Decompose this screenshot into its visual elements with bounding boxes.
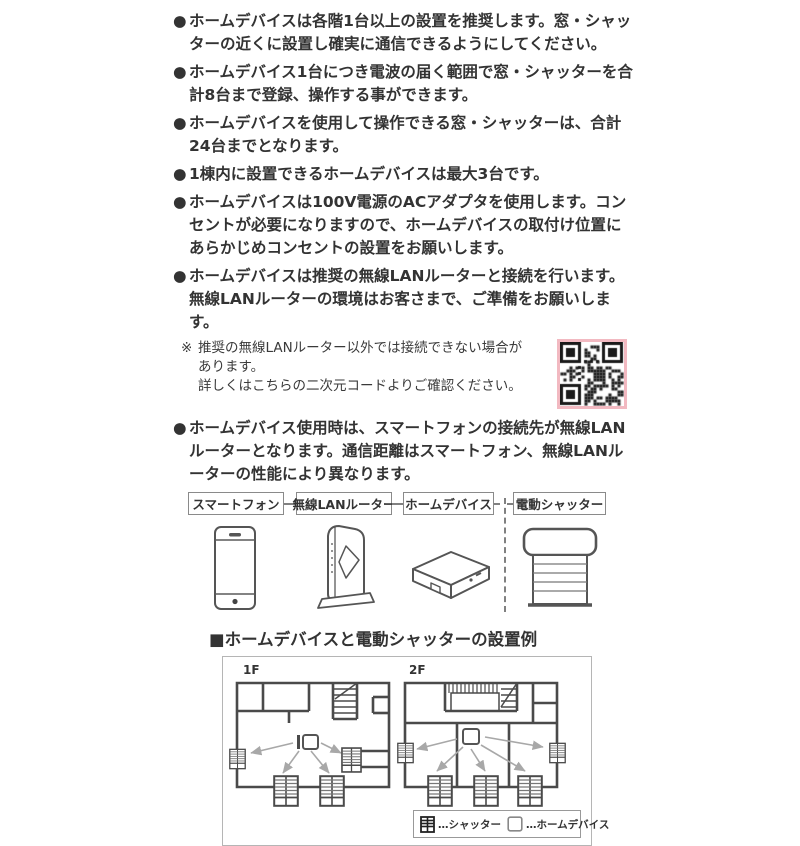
installation-panel: 1F 2F: [222, 656, 592, 846]
bullet-text: ホームデバイス使用時は、スマートフォンの接続先が無線LANルーターとなります。通…: [189, 417, 635, 486]
flow-label-smartphone: スマートフォン: [188, 492, 284, 515]
bullet-marker: ●: [173, 163, 189, 186]
bullet-text: ホームデバイスは100V電源のACアダプタを使用します。コンセントが必要になりま…: [189, 191, 635, 260]
arrows-1f: [251, 743, 341, 773]
shutter-plan-icon: [518, 776, 542, 806]
router-note-text: ※ 推奨の無線LANルーター以外では接続できない場合が あります。 詳しくはこち…: [181, 339, 557, 411]
bullet-item: ● ホームデバイスは100V電源のACアダプタを使用します。コンセントが必要にな…: [173, 191, 635, 260]
qr-code: [557, 339, 627, 409]
flow-label-home-device: ホームデバイス: [403, 492, 494, 515]
bullet-marker: ●: [173, 10, 189, 56]
bullet-text: ホームデバイスは各階1台以上の設置を推奨します。窓・シャッターの近くに設置し確実…: [189, 10, 635, 56]
bullet-item: ● 1棟内に設置できるホームデバイスは最大3台です。: [173, 163, 635, 186]
bullet-text: ホームデバイスを使用して操作できる窓・シャッターは、合計24台までとなります。: [189, 112, 635, 158]
adapter-bar-icon: [297, 735, 300, 749]
shutter-plan-icon: [230, 749, 246, 769]
note-line: 推奨の無線LANルーター以外では接続できない場合が: [198, 339, 557, 358]
flow-label-router: 無線LANルーター: [296, 492, 392, 515]
router-note: ※ 推奨の無線LANルーター以外では接続できない場合が あります。 詳しくはこち…: [181, 339, 635, 411]
home-device-plan-icon: [463, 729, 479, 744]
floor-plan-1f: [229, 677, 401, 827]
wireless-router-icon: [308, 522, 384, 614]
home-device-icon: [405, 540, 495, 606]
note-line: あります。: [198, 358, 557, 377]
home-device-plan-icon: [303, 735, 318, 749]
installation-heading: ■ホームデバイスと電動シャッターの設置例: [209, 626, 635, 650]
shutter-plan-icon: [420, 816, 435, 833]
bullet-text: ホームデバイス1台につき電波の届く範囲で窓・シャッターを合計8台まで登録、操作す…: [189, 61, 635, 107]
qr-code-pattern: [560, 342, 624, 406]
bullet-marker: ●: [173, 61, 189, 107]
shutter-plan-icon: [428, 776, 452, 806]
shutter-plan-icon: [474, 776, 498, 806]
bullet-item: ● ホームデバイス使用時は、スマートフォンの接続先が無線LANルーターとなります…: [173, 417, 635, 486]
plan-legend: …シャッター …ホームデバイス: [413, 810, 581, 838]
connection-flow-diagram: スマートフォン 無線LANルーター ホームデバイス 電動シャッター: [173, 492, 635, 616]
bullet-marker: ●: [173, 417, 189, 486]
legend-label-home-device: …ホームデバイス: [526, 817, 609, 832]
bullet-marker: ●: [173, 191, 189, 260]
electric-shutter-icon: [521, 526, 599, 612]
dashed-divider: [504, 498, 506, 612]
flow-label-shutter: 電動シャッター: [513, 492, 606, 515]
document-body: ● ホームデバイスは各階1台以上の設置を推奨します。窓・シャッターの近くに設置し…: [173, 10, 635, 846]
bullet-marker: ●: [173, 112, 189, 158]
bullet-item: ● ホームデバイスは各階1台以上の設置を推奨します。窓・シャッターの近くに設置し…: [173, 10, 635, 56]
floor-label-1f: 1F: [243, 663, 260, 677]
floor-label-2f: 2F: [409, 663, 426, 677]
bullet-item: ● ホームデバイス1台につき電波の届く範囲で窓・シャッターを合計8台まで登録、操…: [173, 61, 635, 107]
bullet-marker: ●: [173, 265, 189, 334]
dashed-connector: [392, 503, 403, 505]
shutter-plan-icon: [320, 776, 344, 806]
note-line: 詳しくはこちらの二次元コードよりご確認ください。: [198, 377, 557, 396]
shutter-plan-icon: [274, 776, 298, 806]
floor-plan-2f: [397, 677, 569, 827]
bullet-item: ● ホームデバイスを使用して操作できる窓・シャッターは、合計24台までとなります…: [173, 112, 635, 158]
shutter-plan-icon: [550, 743, 566, 763]
bullet-text: ホームデバイスは推奨の無線LANルーターと接続を行います。無線LANルーターの環…: [189, 265, 635, 334]
legend-label-shutter: …シャッター: [438, 817, 501, 832]
home-device-plan-icon: [507, 816, 523, 832]
bullet-item: ● ホームデバイスは推奨の無線LANルーターと接続を行います。無線LANルーター…: [173, 265, 635, 334]
bullet-text: 1棟内に設置できるホームデバイスは最大3台です。: [189, 163, 635, 186]
shutter-plan-icon: [342, 748, 361, 772]
arrows-2f: [417, 737, 543, 771]
shutter-plan-icon: [398, 743, 414, 763]
note-marker: ※: [181, 339, 192, 358]
smartphone-icon: [213, 524, 257, 612]
